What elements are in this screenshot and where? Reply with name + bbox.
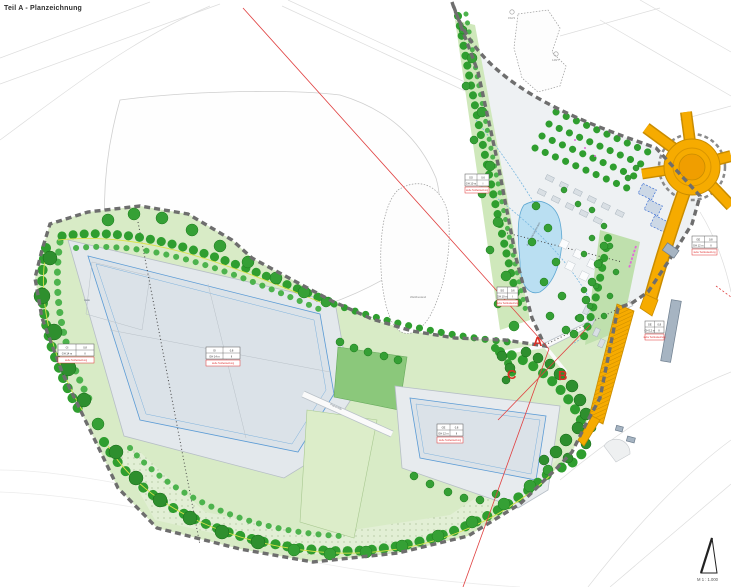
north-arrow [701, 538, 717, 573]
plan-title: Teil A - Planzeichnung [4, 5, 82, 12]
svg-text:GE: GE [696, 237, 700, 241]
svg-text:GH 12 m: GH 12 m [438, 431, 448, 435]
svg-text:GH 12 m: GH 12 m [645, 328, 655, 332]
roundabout-island [679, 154, 705, 180]
svg-text:0,8: 0,8 [455, 425, 459, 429]
nutzungsschablone: GE0,8GH 12 mIIsiehe Textfestsetzung [643, 321, 666, 340]
existing-yard [604, 439, 630, 462]
site-plan-drawing: 152/3 148/7 Waldbestand Halle [0, 0, 731, 587]
svg-text:GH 14 m: GH 14 m [62, 351, 72, 355]
plan-canvas: 152/3 148/7 Waldbestand Halle [0, 0, 731, 587]
svg-text:GI: GI [66, 345, 69, 349]
svg-text:0,6: 0,6 [481, 175, 485, 179]
svg-text:148/7: 148/7 [552, 58, 559, 62]
svg-text:siehe Textfestsetzung: siehe Textfestsetzung [65, 359, 88, 362]
svg-text:GE: GE [442, 425, 446, 429]
nutzungsschablone: GI0,8GH 14 mIIsiehe Textfestsetzung [206, 347, 240, 366]
svg-text:SO: SO [469, 175, 473, 179]
marker-c: C [507, 367, 517, 382]
svg-text:siehe Textfestsetzung: siehe Textfestsetzung [212, 362, 235, 365]
building-label: Halle [84, 298, 90, 302]
marker-b: B [558, 368, 567, 383]
svg-text:SO: SO [500, 288, 504, 292]
svg-text:GI: GI [213, 348, 216, 352]
nutzungsschablone: SO0,6GH 10 mIsiehe Textfestsetzung [496, 287, 519, 306]
svg-text:siehe Textfestsetzung: siehe Textfestsetzung [693, 251, 716, 254]
svg-text:0,6: 0,6 [511, 288, 515, 292]
svg-text:GH 14 m: GH 14 m [209, 354, 219, 358]
marker-a: A [533, 334, 543, 349]
svg-text:GE: GE [648, 322, 652, 326]
nutzungsschablone: GE0,8GH 12 mIIsiehe Textfestsetzung [692, 236, 717, 255]
svg-text:GH 12 m: GH 12 m [693, 243, 703, 247]
svg-text:0,8: 0,8 [230, 348, 234, 352]
nutzungsschablone: GI0,8GH 14 mIIsiehe Textfestsetzung [58, 344, 94, 363]
parcel-ref-1: 152/3 [508, 10, 515, 20]
svg-text:GH 10 m: GH 10 m [497, 294, 507, 298]
biotope-outline [514, 10, 566, 92]
forest-label: Waldbestand [410, 295, 427, 299]
nutzungsschablone: SO0,6GH 10 mIsiehe Textfestsetzung [465, 174, 489, 193]
svg-text:152/3: 152/3 [508, 16, 515, 20]
svg-text:siehe Textfestsetzung: siehe Textfestsetzung [496, 302, 519, 305]
svg-text:0,8: 0,8 [83, 345, 87, 349]
scale-label: M 1 : 1.000 [697, 577, 719, 582]
pond-forest-outline [381, 184, 449, 334]
svg-text:siehe Textfestsetzung: siehe Textfestsetzung [643, 336, 666, 339]
svg-text:0,8: 0,8 [657, 322, 661, 326]
svg-text:siehe Textfestsetzung: siehe Textfestsetzung [466, 189, 489, 192]
nutzungsschablone: GE0,8GH 12 mIIsiehe Textfestsetzung [437, 424, 463, 443]
svg-text:GH 10 m: GH 10 m [466, 181, 476, 185]
svg-text:0,8: 0,8 [709, 237, 713, 241]
svg-text:siehe Textfestsetzung: siehe Textfestsetzung [439, 439, 462, 442]
